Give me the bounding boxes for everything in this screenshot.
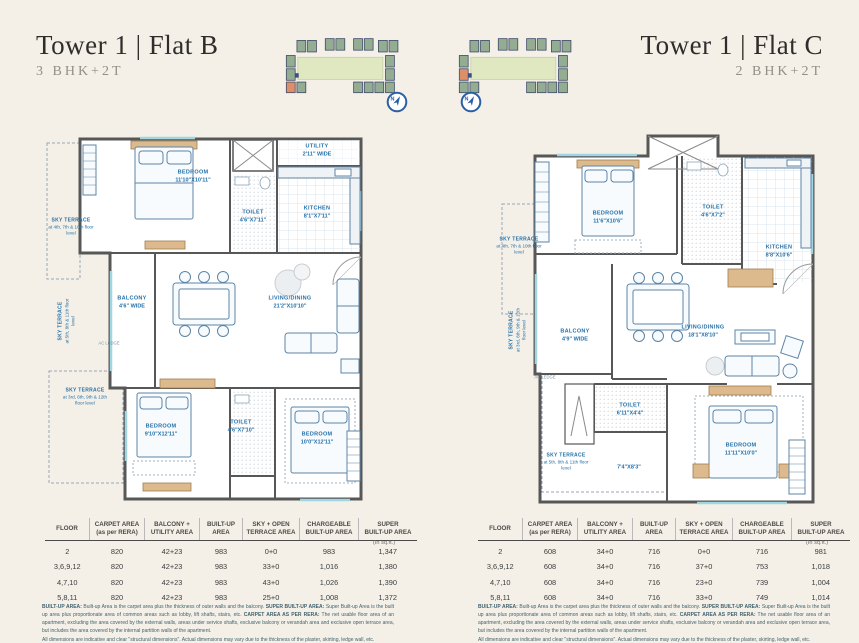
svg-text:N: N: [391, 97, 395, 103]
table-row: 3,6,9,1260834+071637+07531,018: [478, 559, 850, 574]
room-label-sky-terrace: SKY TERRACE at 3rd, 6th, 9th & 12th floo…: [62, 388, 108, 407]
room-label-utility: UTILITY 2'11" WIDE: [303, 144, 332, 159]
col-chargeable: CHARGEABLE BUILT-UP AREA: [300, 518, 359, 541]
flat-c-title-block: Tower 1 | Flat C 2 BHK+2T: [641, 30, 824, 80]
flat-b-title: Tower 1 | Flat B: [36, 30, 219, 61]
flat-b-plan-drawing: [45, 131, 368, 505]
col-carpet-area: CARPET AREA (as per RERA): [90, 518, 145, 541]
flat-c-subtitle: 2 BHK+2T: [641, 64, 824, 80]
brochure-page: Tower 1 | Flat B 3 BHK+2T Tower 1 | Flat…: [0, 0, 859, 643]
col-balcony-utility: BALCONY + UTILITY AREA: [578, 518, 633, 541]
table-header-row: FLOOR CARPET AREA (as per RERA) BALCONY …: [45, 518, 417, 541]
room-label-bedroom: BEDROOM 11'11"X10'0": [725, 443, 757, 458]
flat-c-floor-plan: BEDROOM 11'6"X10'6" TOILET 4'6"X7'2" KIT…: [487, 134, 822, 506]
room-label-sky-terrace: SKY TERRACE at 4th, 7th & 10th floor lev…: [496, 237, 542, 256]
table-header-row: FLOOR CARPET AREA (as per RERA) BALCONY …: [478, 518, 850, 541]
site-plan-map-drawing: [283, 36, 403, 98]
table-row: 4,7,1082042+2398343+01,0261,390: [45, 575, 417, 590]
flat-b-subtitle: 3 BHK+2T: [36, 64, 219, 80]
flat-b-location-highlight: [286, 82, 295, 93]
col-built-up: BUILT-UP AREA: [200, 518, 243, 541]
ac-ledge-label: AC LEDGE: [98, 341, 119, 346]
col-sky-terrace: SKY + OPEN TERRACE AREA: [243, 518, 300, 541]
ac-ledge-label: AC LEDGE: [534, 375, 555, 380]
table-row: 282042+239830+09831,347: [45, 541, 417, 560]
room-label-toilet: TOILET 4'6"X7'2": [701, 205, 725, 220]
room-label-sky-terrace: SKY TERRACE at 3rd, 6th, 9th & 12th floo…: [509, 307, 528, 353]
room-label-kitchen: KITCHEN 8'8"X10'6": [766, 245, 793, 260]
svg-text:N: N: [465, 97, 469, 103]
room-label-sky-terrace: SKY TERRACE at 5th, 8th & 11th floor lev…: [58, 298, 77, 344]
room-label-balcony: BALCONY 4'9" WIDE: [560, 329, 589, 344]
site-plan-map-flat-b: [283, 36, 403, 103]
col-floor: FLOOR: [45, 518, 90, 541]
room-label-bedroom: BEDROOM 9'10"X12'11": [145, 424, 178, 439]
room-label-bedroom: BEDROOM 11'6"X10'6": [593, 211, 624, 226]
col-floor: FLOOR: [478, 518, 523, 541]
flat-c-area-table: FLOOR CARPET AREA (as per RERA) BALCONY …: [478, 518, 850, 605]
table-row: 3,6,9,1282042+2398333+01,0161,380: [45, 559, 417, 574]
flat-c-title: Tower 1 | Flat C: [641, 30, 824, 61]
flat-c-plan-drawing: [487, 134, 822, 506]
col-built-up: BUILT-UP AREA: [633, 518, 676, 541]
room-label-sky-terrace: SKY TERRACE at 4th, 7th & 10th floor lev…: [48, 218, 94, 237]
flat-c-location-highlight: [459, 69, 468, 81]
room-label-living-dining: LIVING/DINING 18'1"X8'10": [681, 325, 724, 340]
north-compass-icon: N: [386, 91, 408, 118]
flat-b-title-block: Tower 1 | Flat B 3 BHK+2T: [36, 30, 219, 80]
disclaimer-text: BUILT-UP AREA: Built-up Area is the carp…: [42, 603, 394, 643]
unit-note: (In sq.ft.): [373, 540, 395, 546]
room-label-bedroom: BEDROOM 10'0"X12'11": [301, 432, 334, 447]
room-label-living-dining: LIVING/DINING 21'2"X10'10": [268, 296, 311, 311]
room-label-toilet: TOILET 4'6"X7'11": [240, 210, 267, 225]
room-label-toilet: TOILET 4'6"X7'10": [228, 420, 255, 435]
room-label-balcony: BALCONY 4'6" WIDE: [117, 296, 146, 311]
table-row: 4,7,1060834+071623+07391,004: [478, 575, 850, 590]
room-label-kitchen: KITCHEN 8'1"X7'11": [304, 206, 331, 221]
col-carpet-area: CARPET AREA (as per RERA): [523, 518, 578, 541]
flat-b-floor-plan: BEDROOM 11'10"X10'11" TOILET 4'6"X7'11" …: [45, 131, 368, 505]
north-compass-icon: N: [460, 91, 482, 118]
table-row: 260834+07160+0716981: [478, 541, 850, 560]
room-label-bedroom: BEDROOM 11'10"X10'11": [175, 170, 210, 185]
room-label-toilet: TOILET 6'11"X4'4": [617, 403, 644, 418]
room-label-sky-terrace: SKY TERRACE at 5th, 8th & 11th floor lev…: [543, 453, 589, 472]
col-sky-terrace: SKY + OPEN TERRACE AREA: [676, 518, 733, 541]
col-super-built-up: SUPER BUILT-UP AREA: [359, 518, 418, 541]
site-plan-map-drawing: [456, 36, 576, 98]
flat-b-area-table: FLOOR CARPET AREA (as per RERA) BALCONY …: [45, 518, 417, 605]
room-label-open-terrace-dims: 7'4"X8'3": [617, 465, 641, 472]
col-balcony-utility: BALCONY + UTILITY AREA: [145, 518, 200, 541]
disclaimer-text: BUILT-UP AREA: Built-up Area is the carp…: [478, 603, 830, 643]
col-chargeable: CHARGEABLE BUILT-UP AREA: [733, 518, 792, 541]
col-super-built-up: SUPER BUILT-UP AREA: [792, 518, 851, 541]
unit-note: (In sq.ft.): [806, 540, 828, 546]
